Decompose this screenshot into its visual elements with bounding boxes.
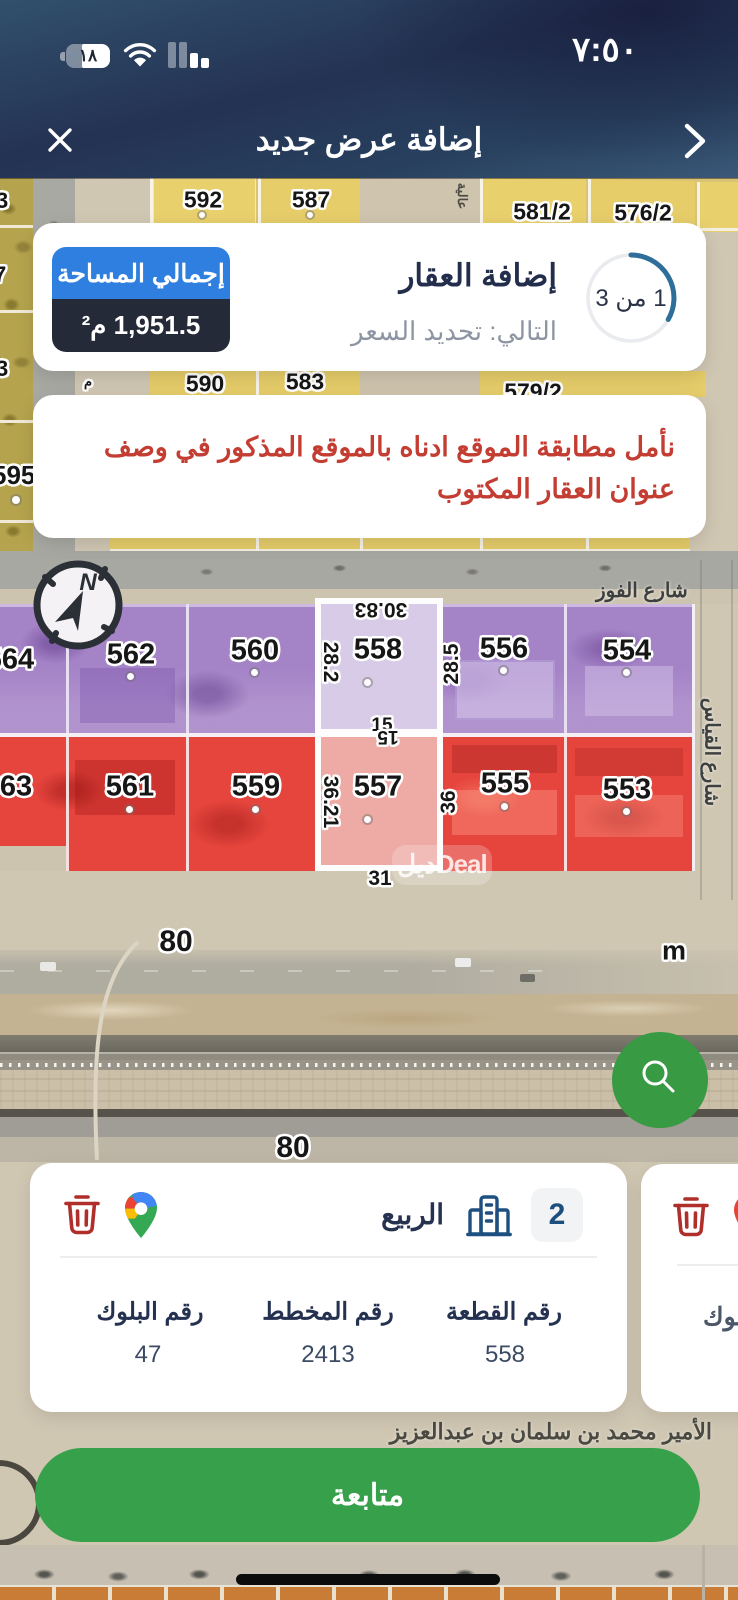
svg-text:1 من 3: 1 من 3 [595,285,666,312]
svg-text:N: N [79,569,97,596]
